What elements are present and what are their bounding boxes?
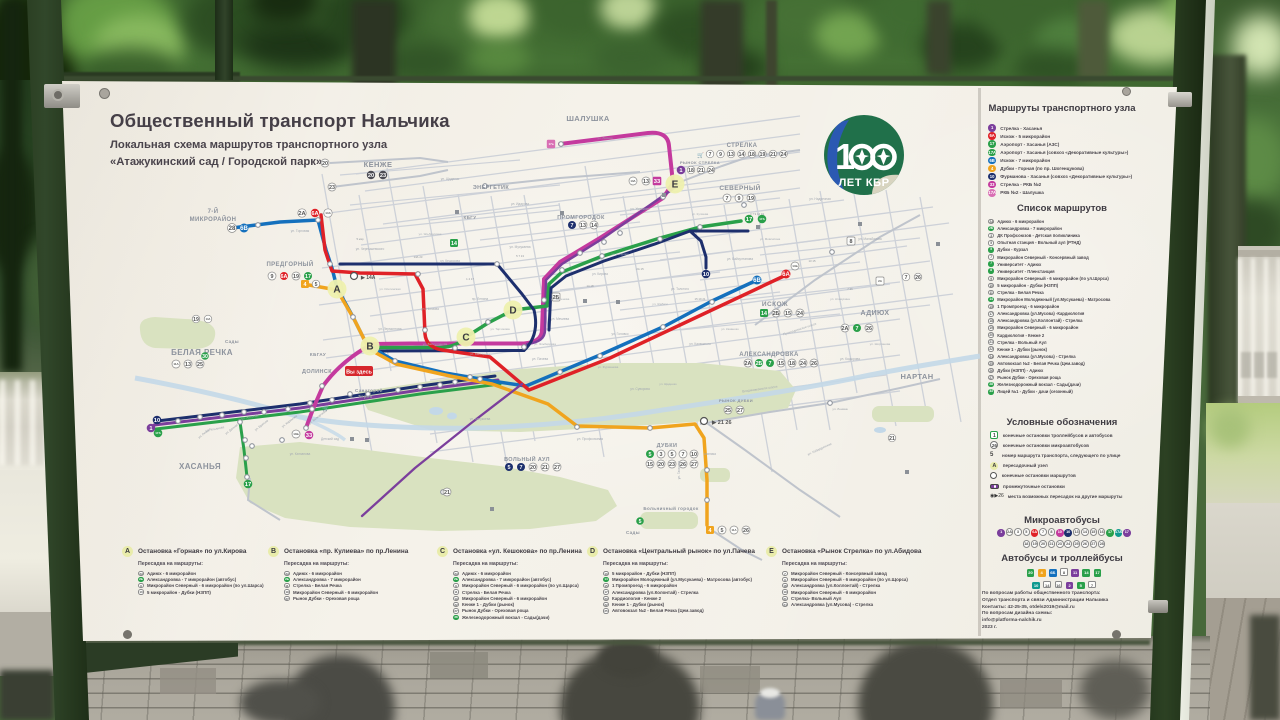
svg-text:ул. Чернышевского: ул. Чернышевского	[356, 247, 385, 251]
svg-text:7: 7	[726, 196, 729, 202]
svg-text:2А 15: 2А 15	[636, 267, 644, 271]
svg-text:Терек: Терек	[358, 394, 373, 399]
svg-text:7: 7	[520, 465, 523, 471]
svg-text:6А: 6А	[311, 211, 318, 217]
svg-text:ул. Щаденко: ул. Щаденко	[659, 382, 677, 386]
svg-text:ВОЛЬНЫЙ АУЛ: ВОЛЬНЫЙ АУЛ	[504, 455, 550, 463]
svg-text:14: 14	[739, 152, 745, 158]
svg-text:27: 27	[737, 408, 743, 414]
svg-text:26: 26	[915, 275, 921, 281]
svg-text:ул. Мусукаева: ул. Мусукаева	[509, 245, 530, 249]
svg-text:19: 19	[760, 152, 766, 158]
svg-text:РЫНОК СТРЕЛКА: РЫНОК СТРЕЛКА	[680, 160, 720, 165]
svg-text:17А: 17А	[155, 431, 161, 435]
svg-text:26: 26	[811, 361, 817, 367]
svg-text:23: 23	[669, 462, 675, 468]
svg-text:30: 30	[202, 354, 208, 360]
svg-text:Вы здесь: Вы здесь	[346, 369, 372, 375]
svg-text:КБГАУ: КБГАУ	[310, 352, 326, 357]
svg-text:15: 15	[778, 361, 784, 367]
svg-text:20: 20	[322, 161, 328, 167]
svg-text:ул. Идарова: ул. Идарова	[511, 202, 529, 206]
svg-text:ул. Кадырова: ул. Кадырова	[840, 357, 860, 361]
svg-text:10: 10	[703, 272, 709, 278]
svg-text:9: 9	[271, 274, 274, 280]
svg-text:ул. Шогенова: ул. Шогенова	[551, 297, 570, 301]
svg-text:МИКРОРАЙОН: МИКРОРАЙОН	[190, 215, 237, 223]
svg-text:ул. Пачева: ул. Пачева	[532, 357, 548, 361]
svg-text:6А: 6А	[782, 272, 790, 278]
svg-text:15 19 21: 15 19 21	[695, 297, 706, 301]
svg-text:▶ 21 26: ▶ 21 26	[711, 419, 732, 426]
svg-text:D: D	[509, 306, 516, 317]
svg-text:20: 20	[658, 462, 664, 468]
svg-text:7: 7	[571, 223, 574, 229]
svg-text:ул. Щаденко: ул. Щаденко	[441, 177, 460, 181]
svg-text:ул. Мечиева: ул. Мечиева	[551, 317, 569, 321]
svg-text:13А: 13А	[630, 179, 635, 183]
svg-text:7: 7	[905, 275, 908, 281]
svg-text:ул. Ногмова: ул. Ногмова	[421, 307, 439, 311]
svg-text:17А: 17А	[759, 217, 765, 221]
svg-text:7: 7	[682, 452, 685, 458]
svg-text:A: A	[333, 285, 340, 296]
svg-text:ул. Ульянова: ул. Ульянова	[205, 425, 225, 433]
svg-text:ул. Дачная: ул. Дачная	[224, 423, 239, 436]
svg-text:ул. Кешокова: ул. Кешокова	[440, 259, 460, 263]
svg-text:ул. Мовсисяна: ул. Мовсисяна	[760, 237, 781, 241]
svg-text:Санаторий: Санаторий	[355, 387, 383, 393]
svg-text:8: 8	[850, 239, 853, 245]
svg-text:5: 5	[649, 452, 652, 458]
svg-text:2А: 2А	[842, 326, 849, 332]
svg-text:СТРЕЛКА: СТРЕЛКА	[727, 143, 758, 149]
svg-text:ул. Казаноко: ул. Казаноко	[721, 327, 739, 331]
svg-text:6В: 6В	[240, 226, 248, 232]
svg-text:ул. Лесная: ул. Лесная	[598, 136, 613, 140]
svg-text:E: E	[672, 180, 679, 191]
svg-text:18: 18	[789, 361, 795, 367]
svg-text:17: 17	[305, 274, 311, 280]
svg-text:10: 10	[154, 418, 160, 424]
svg-text:ул. Эльбрусская: ул. Эльбрусская	[419, 232, 442, 236]
svg-text:26: 26	[866, 326, 872, 332]
svg-text:5 мкр: 5 мкр	[356, 237, 363, 241]
svg-text:B: B	[366, 342, 373, 353]
svg-text:7: 7	[769, 361, 772, 367]
svg-text:ул. Мальбахова: ул. Мальбахова	[858, 237, 882, 241]
svg-text:13 15: 13 15	[809, 259, 816, 263]
svg-text:13: 13	[580, 223, 586, 229]
svg-text:СЕВЕРНЫЙ: СЕВЕРНЫЙ	[719, 183, 760, 192]
svg-text:ул. Толстого: ул. Толстого	[671, 287, 689, 291]
svg-text:ул. Хужокова: ул. Хужокова	[630, 207, 650, 211]
svg-text:🛒: 🛒	[697, 152, 704, 159]
svg-text:17а: 17а	[548, 142, 553, 146]
svg-text:11А: 11А	[732, 528, 737, 532]
svg-text:21: 21	[444, 490, 450, 496]
svg-text:ул. Суворова: ул. Суворова	[630, 387, 650, 391]
svg-text:7: 7	[856, 326, 859, 332]
svg-text:✳: ✳	[349, 395, 353, 401]
svg-text:7: 7	[709, 152, 712, 158]
svg-text:14: 14	[451, 241, 457, 247]
svg-text:🛒: 🛒	[322, 404, 330, 412]
svg-text:ул. Эльбердова: ул. Эльбердова	[534, 342, 556, 346]
svg-text:5: 5	[639, 519, 642, 525]
svg-text:14: 14	[591, 223, 597, 229]
svg-text:ИСКОЖ: ИСКОЖ	[762, 301, 788, 308]
svg-text:18: 18	[688, 168, 694, 174]
svg-text:Детский сад: Детский сад	[321, 437, 339, 441]
svg-text:ул. Жабаги: ул. Жабаги	[652, 302, 668, 306]
svg-text:ул. Байсултанова: ул. Байсултанова	[423, 342, 448, 346]
svg-text:25: 25	[197, 362, 203, 368]
svg-text:ул. Атажукина: ул. Атажукина	[830, 297, 850, 301]
svg-text:ул. Кулиева: ул. Кулиева	[692, 212, 709, 216]
svg-text:3: 3	[660, 452, 663, 458]
svg-text:ул. Калюжного: ул. Калюжного	[689, 342, 711, 346]
svg-text:2А: 2А	[745, 361, 752, 367]
svg-text:ул. Тарчокова: ул. Тарчокова	[490, 327, 510, 331]
svg-text:ул. Головко: ул. Головко	[612, 332, 629, 336]
svg-text:ул. Байсултанова: ул. Байсултанова	[727, 257, 753, 261]
svg-text:ул. Балкарова: ул. Балкарова	[470, 352, 490, 356]
svg-text:ул. Гагарина: ул. Гагарина	[677, 461, 681, 480]
svg-text:НАРТАН: НАРТАН	[900, 372, 933, 381]
svg-text:ШАЛУШКА: ШАЛУШКА	[566, 114, 609, 123]
svg-text:5: 5	[315, 282, 318, 288]
svg-text:14А: 14А	[325, 211, 331, 215]
svg-text:КБГУ: КБГУ	[464, 215, 477, 220]
svg-text:19: 19	[193, 317, 199, 323]
svg-text:24: 24	[797, 311, 803, 317]
svg-text:19: 19	[748, 196, 754, 202]
svg-text:9: 9	[738, 196, 741, 202]
svg-text:27: 27	[691, 462, 697, 468]
svg-text:Больничный городок: Больничный городок	[643, 505, 699, 511]
svg-text:Сады: Сады	[225, 339, 239, 344]
svg-text:23: 23	[329, 185, 335, 191]
svg-text:26: 26	[743, 528, 749, 534]
svg-text:17: 17	[245, 482, 251, 488]
svg-text:ул. Шортанова: ул. Шортанова	[870, 342, 891, 346]
svg-text:10: 10	[691, 452, 697, 458]
svg-text:ПРОМГОРОДОК: ПРОМГОРОДОК	[557, 215, 605, 221]
svg-text:6В: 6В	[753, 278, 761, 284]
svg-text:3 7 9 14 19: 3 7 9 14 19	[750, 212, 764, 216]
svg-text:▶ 14А: ▶ 14А	[360, 275, 376, 281]
svg-text:ул. Фурманова: ул. Фурманова	[598, 365, 619, 369]
svg-text:24: 24	[781, 152, 787, 158]
svg-text:ул. Кабардинская: ул. Кабардинская	[807, 442, 832, 457]
svg-text:Сады: Сады	[626, 530, 640, 535]
svg-text:2Б: 2Б	[756, 361, 763, 367]
svg-text:14Б: 14Б	[792, 264, 798, 268]
svg-text:5 7 13: 5 7 13	[516, 254, 524, 258]
svg-text:13: 13	[643, 179, 649, 185]
svg-text:6А: 6А	[281, 274, 288, 280]
svg-text:21: 21	[542, 465, 548, 471]
svg-text:ул. Ашурова: ул. Ашурова	[611, 252, 629, 256]
svg-text:18: 18	[749, 152, 755, 158]
svg-text:1 4 17: 1 4 17	[466, 277, 474, 281]
svg-text:ул. Канукоева: ул. Канукоева	[470, 417, 491, 421]
svg-text:2Б: 2Б	[773, 311, 780, 317]
svg-text:ул. Лермонтова: ул. Лермонтова	[378, 327, 401, 331]
svg-text:КЕНЖЕ: КЕНЖЕ	[364, 160, 393, 169]
svg-text:2А: 2А	[298, 211, 305, 217]
svg-text:13Б: 13Б	[293, 432, 299, 436]
svg-text:ДОЛИНСК: ДОЛИНСК	[302, 369, 332, 375]
svg-text:14: 14	[761, 311, 767, 317]
svg-text:ул. Осетинская: ул. Осетинская	[379, 287, 401, 291]
svg-text:14 18: 14 18	[587, 284, 594, 288]
svg-text:5: 5	[508, 465, 511, 471]
svg-text:27: 27	[554, 465, 560, 471]
svg-text:7-Й: 7-Й	[208, 207, 219, 215]
svg-text:ул. Катханова: ул. Катханова	[290, 452, 311, 456]
svg-text:13: 13	[185, 362, 191, 368]
svg-text:28: 28	[229, 226, 236, 232]
svg-text:ХАСАНЬЯ: ХАСАНЬЯ	[179, 462, 221, 471]
svg-text:14А 23: 14А 23	[414, 255, 423, 259]
svg-text:23: 23	[380, 173, 386, 179]
svg-text:33: 33	[654, 179, 661, 185]
svg-text:13: 13	[728, 152, 734, 158]
svg-text:C: C	[462, 333, 469, 344]
svg-text:11А: 11А	[173, 362, 179, 366]
svg-text:21: 21	[698, 168, 704, 174]
svg-text:17: 17	[746, 217, 752, 223]
svg-text:ЛЕТ КБР: ЛЕТ КБР	[838, 177, 889, 189]
svg-text:7 26: 7 26	[847, 287, 853, 291]
svg-text:24: 24	[708, 168, 714, 174]
svg-text:4: 4	[304, 282, 307, 288]
svg-text:20: 20	[530, 465, 536, 471]
svg-text:РЫНОК ДУБКИ: РЫНОК ДУБКИ	[719, 398, 753, 403]
svg-text:25: 25	[725, 408, 731, 414]
svg-text:5: 5	[671, 452, 674, 458]
svg-text:клиника: клиника	[704, 452, 716, 456]
svg-text:ул. Ленина: ул. Ленина	[832, 407, 847, 411]
svg-text:9: 9	[719, 152, 722, 158]
svg-text:21: 21	[889, 436, 895, 442]
svg-text:АЛЕКСАНДРОВКА: АЛЕКСАНДРОВКА	[739, 352, 799, 358]
svg-text:ДУБКИ: ДУБКИ	[657, 443, 678, 449]
svg-text:20: 20	[368, 173, 374, 179]
svg-text:ул. Кирова: ул. Кирова	[592, 272, 608, 276]
svg-text:24: 24	[800, 361, 806, 367]
svg-text:ЭНЕРГЕТИК: ЭНЕРГЕТИК	[473, 185, 510, 191]
svg-text:21: 21	[770, 152, 776, 158]
svg-text:19: 19	[293, 274, 299, 280]
svg-text:14А: 14А	[206, 317, 211, 321]
svg-text:ул. Братьев: ул. Братьев	[254, 418, 270, 431]
svg-text:15: 15	[647, 462, 653, 468]
svg-text:15: 15	[785, 311, 791, 317]
svg-text:33: 33	[306, 433, 313, 439]
svg-text:ул. Профсоюзная: ул. Профсоюзная	[577, 437, 603, 441]
svg-text:5: 5	[721, 528, 724, 534]
svg-text:ПРЕДГОРНЫЙ: ПРЕДГОРНЫЙ	[266, 260, 313, 268]
svg-text:ул. Торговая: ул. Торговая	[291, 229, 310, 233]
svg-text:4: 4	[709, 528, 712, 534]
svg-text:АДИЮХ: АДИЮХ	[861, 310, 890, 317]
svg-text:пр. Ленина: пр. Ленина	[472, 297, 488, 301]
